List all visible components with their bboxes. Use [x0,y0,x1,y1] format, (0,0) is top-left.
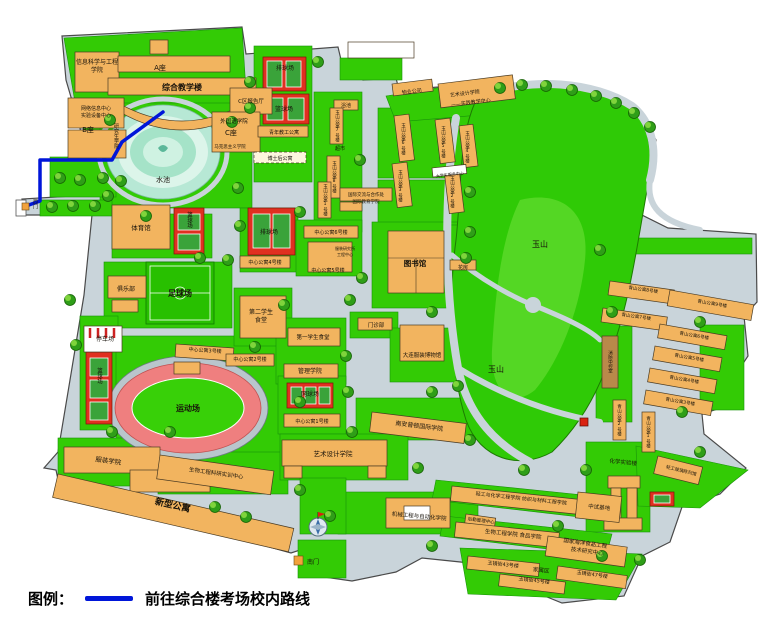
map-label: 玉山公寓3号楼 [398,170,403,204]
map-label: 青年教工公寓 [269,129,299,136]
map-label: 图书馆 [404,258,427,268]
map-label: 中心公寓6号楼 [314,229,347,236]
map-label: 研究生学院 [113,124,119,150]
basketball-strip [86,352,112,424]
map-label: B座 [82,125,94,134]
map-label: 管理学院 [298,367,322,375]
map-label: 国际交流与合作处 [348,191,384,198]
map-label: 学院 [91,66,103,74]
map-label: 网球场 [301,390,319,398]
map-label: 中心公寓5号楼 [311,267,344,274]
legend-route-label: 前往综合楼考场校内路线 [145,588,310,609]
map-label: 马克思主义学院 [214,143,246,150]
map-label: 运动场 [176,403,200,413]
map-label: 玉山公寓8号楼 [332,161,337,195]
map-label: 玉山公寓7号楼 [335,110,340,144]
map-label: 停车场 [96,335,114,343]
legend-route-swatch [85,596,133,601]
map-label: 消防中控室 [608,350,613,374]
map-label: 中心公寓1号楼 [295,418,328,425]
map-label: 浴池 [341,102,351,109]
map-label: 青山公寓2号楼 [617,403,622,438]
map-label: 南门 [307,558,319,566]
map-label: 国际教育学院 [353,198,380,205]
map-label: 玉山公寓6号楼 [401,123,406,157]
volleyball-courts-top [263,57,306,91]
campus-map-page: 信息科学与工程学院A座综合教学楼C区报告厅网络信息中心实验设备中心B座研究生学院… [0,0,760,629]
map-label: 篮球场 [275,105,293,113]
map-label: 艺术设计学院 [314,449,354,458]
south-gate [294,556,303,565]
map-label: 门诊部 [368,321,385,329]
map-label: 中心公寓4号楼 [248,259,281,266]
map-label: 玉山 [532,239,548,249]
map-label: 外国语学院 [220,117,248,125]
map-label: 食堂 [255,316,267,324]
map-label: 第二学生 [249,308,273,316]
map-label: 玉山公寓4号楼 [465,131,470,165]
map-label: 篮球场 [96,367,103,386]
legend: 图例： 前往综合楼考场校内路线 [28,588,310,609]
map-label: 玉山 [488,364,504,374]
map-label: 大连服装博物馆 [403,351,442,359]
map-label: 水池 [156,175,170,184]
map-label: 排球场 [276,64,294,72]
map-label: 玉山公寓2号楼 [450,176,455,210]
map-label: 玉山公寓1号楼 [323,184,328,218]
map-label: 博士后公寓 [267,155,292,162]
map-label: 足球场 [168,288,192,298]
map-label: 综合教学楼 [162,82,202,92]
map-label: 玉山公寓5号楼 [441,126,446,160]
map-label: 花房 [458,264,468,271]
map-label: 青山公寓1号楼 [646,415,651,450]
map-label: 排球场 [260,228,278,236]
map-label: 篮球场 [186,211,193,230]
map-label: 中心公寓2号楼 [233,356,266,363]
map-label: 信息科学与工程 [76,58,118,66]
map-label: C座 [225,128,237,137]
map-label: 第一学生食堂 [296,333,330,341]
map-label: 服装研究所 [335,245,355,251]
campus-map-svg: 信息科学与工程学院A座综合教学楼C区报告厅网络信息中心实验设备中心B座研究生学院… [0,0,760,629]
map-label: 体育馆 [131,223,151,232]
map-label: A座 [154,63,166,72]
map-label: 超市 [335,145,345,152]
map-label: C区报告厅 [238,97,264,105]
map-label: 网络信息中心 [81,105,111,112]
court-southeast [650,492,674,506]
map-label: 俱乐部 [117,285,135,293]
legend-title: 图例： [28,588,73,609]
map-label: 工程中心 [337,251,353,257]
map-label: 实验设备中心 [81,112,111,119]
map-label: 西门 [32,199,38,210]
